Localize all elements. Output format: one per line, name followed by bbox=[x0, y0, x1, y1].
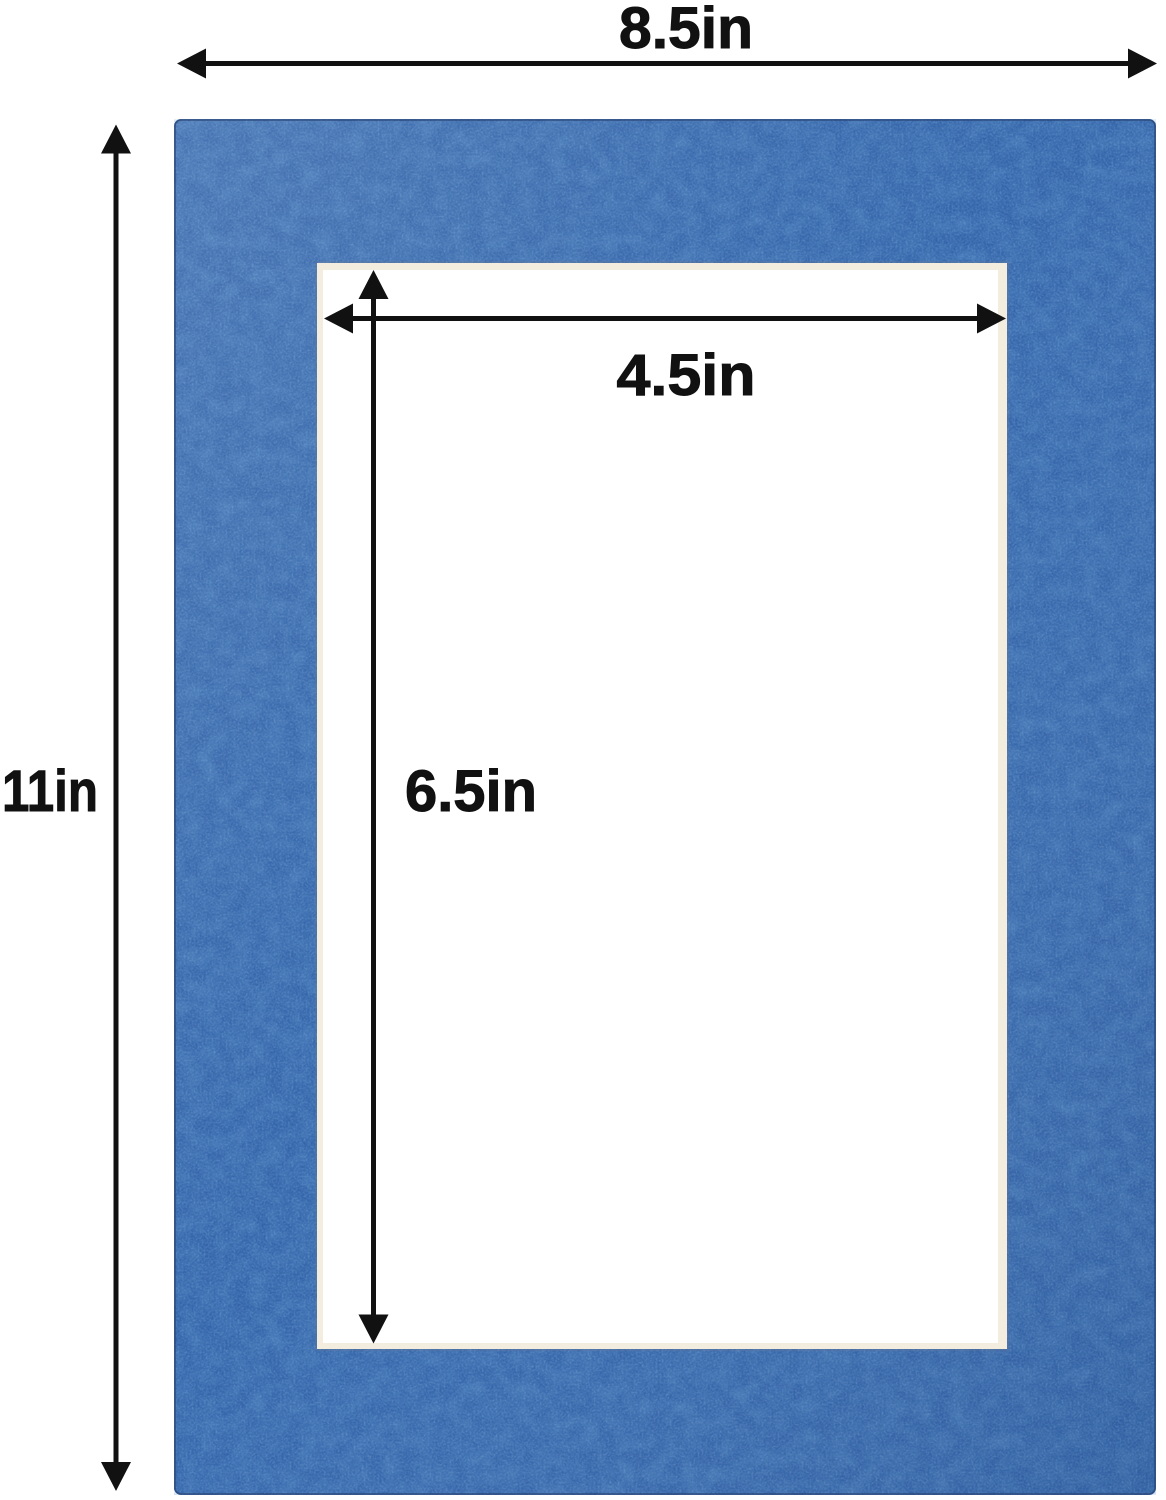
svg-text:11in: 11in bbox=[2, 759, 98, 824]
svg-text:4.5in: 4.5in bbox=[617, 343, 756, 408]
svg-text:8.5in: 8.5in bbox=[619, 0, 753, 61]
svg-text:6.5in: 6.5in bbox=[405, 759, 537, 824]
